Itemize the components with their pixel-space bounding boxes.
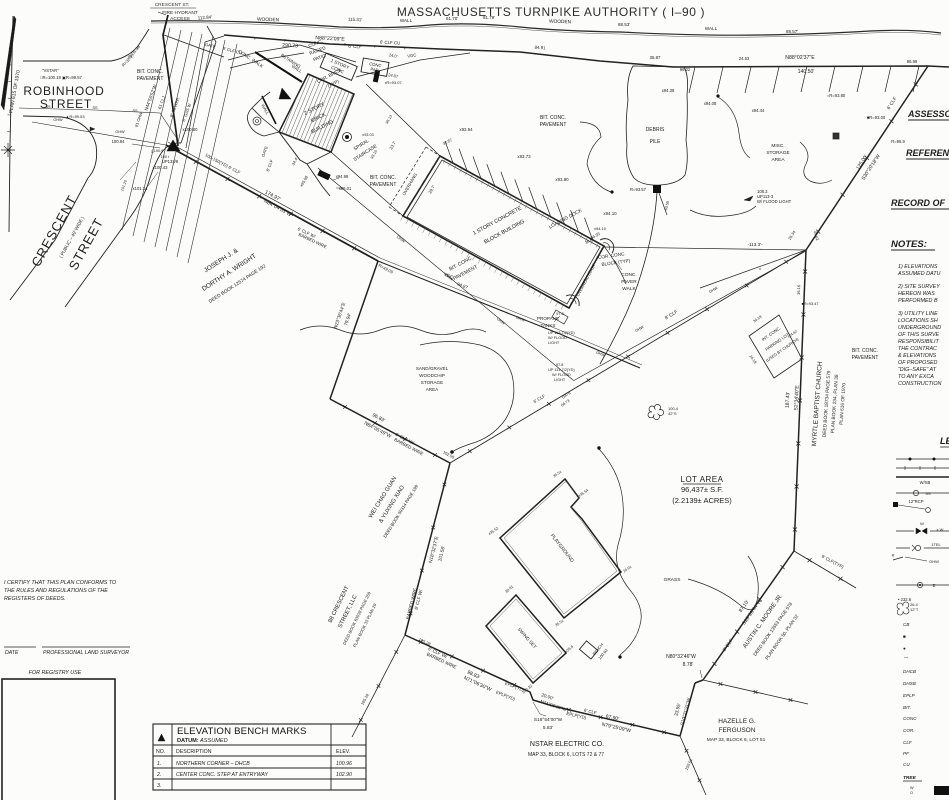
- svg-text:FOR REGISTRY USE: FOR REGISTRY USE: [29, 670, 82, 676]
- svg-text:PAVEMENT: PAVEMENT: [370, 182, 397, 188]
- svg-text:AREA: AREA: [426, 387, 439, 392]
- svg-text:61.70': 61.70': [446, 16, 458, 21]
- svg-text:5.83': 5.83': [543, 725, 553, 731]
- svg-text:6' CLF CU: 6' CLF CU: [380, 39, 401, 45]
- svg-text:100.96: 100.96: [336, 761, 352, 767]
- svg-text:x100.43: x100.43: [153, 165, 169, 170]
- svg-text:PAVER: PAVER: [621, 279, 637, 285]
- svg-text:WOODEN: WOODEN: [549, 19, 572, 26]
- svg-text:RESPONSIBILIT: RESPONSIBILIT: [898, 339, 939, 345]
- svg-text:ASSESSORS: ASSESSORS: [907, 109, 949, 119]
- svg-text:DHCB: DHCB: [903, 669, 916, 674]
- svg-text:100.84: 100.84: [112, 139, 125, 144]
- svg-text:ELEV.: ELEV.: [336, 749, 350, 755]
- svg-text:x94.10: x94.10: [594, 226, 607, 231]
- svg-text:UP 113-7/2(YD): UP 113-7/2(YD): [548, 331, 575, 335]
- svg-text:GRASS: GRASS: [664, 577, 681, 583]
- svg-text:x100.80: x100.80: [183, 127, 199, 132]
- svg-text:■R=93.47: ■R=93.47: [802, 302, 819, 306]
- svg-text:REGISTERS OF DEEDS.: REGISTERS OF DEEDS.: [4, 596, 66, 602]
- svg-text:24.53: 24.53: [739, 56, 750, 61]
- svg-text:x101.14: x101.14: [133, 186, 149, 191]
- svg-text:x93.80: x93.80: [555, 177, 569, 182]
- svg-text:PILE: PILE: [650, 139, 662, 145]
- svg-text:□R=100.18 ▣R=99.57: □R=100.18 ▣R=99.57: [40, 75, 83, 80]
- svg-text:UP 113-7/2(YD): UP 113-7/2(YD): [548, 368, 575, 372]
- svg-text:S18°54'00"W: S18°54'00"W: [534, 717, 563, 723]
- svg-text:ROBINHOOD: ROBINHOOD: [23, 84, 104, 98]
- svg-text:NORTHERN CORNER – DHCB: NORTHERN CORNER – DHCB: [176, 761, 250, 767]
- svg-text:W/ FLOOD: W/ FLOOD: [548, 336, 567, 340]
- svg-text:CONC: CONC: [903, 716, 917, 721]
- svg-text:E: E: [933, 583, 936, 588]
- svg-text:SS: SS: [92, 106, 98, 110]
- svg-text:CB: CB: [903, 622, 909, 627]
- svg-text:BIT. CONC.: BIT. CONC.: [852, 348, 878, 354]
- svg-text:42"S: 42"S: [668, 411, 677, 416]
- svg-text:112.84': 112.84': [198, 15, 213, 21]
- svg-text:ASSUMED DATU: ASSUMED DATU: [897, 271, 941, 277]
- svg-text:RECORD OF: RECORD OF: [891, 198, 946, 208]
- svg-text:WALL: WALL: [400, 18, 413, 23]
- svg-text:x93.54: x93.54: [459, 127, 473, 132]
- svg-text:SS: SS: [925, 491, 931, 496]
- svg-text:CONSTRUCTION: CONSTRUCTION: [898, 381, 942, 387]
- svg-text:HEREON WAS: HEREON WAS: [898, 291, 935, 297]
- svg-text:DESCRIPTION: DESCRIPTION: [176, 749, 212, 755]
- svg-text:N80°32'46"W: N80°32'46"W: [666, 654, 696, 660]
- svg-text:OF PROPOSED: OF PROPOSED: [898, 360, 938, 366]
- svg-text:CLF: CLF: [903, 740, 913, 745]
- svg-text:TREE: TREE: [903, 775, 917, 781]
- svg-text:R=95.9: R=95.9: [891, 139, 905, 144]
- svg-text:2) SITE SURVEY: 2) SITE SURVEY: [897, 284, 940, 290]
- svg-text:OHW: OHW: [929, 559, 939, 564]
- svg-text:ELEVATION BENCH MARKS: ELEVATION BENCH MARKS: [177, 726, 307, 737]
- svg-text:HAZELLE G.: HAZELLE G.: [718, 718, 756, 725]
- svg-text:8.78': 8.78': [683, 662, 694, 668]
- svg-text:THE RULES AND REGULATIONS OF T: THE RULES AND REGULATIONS OF THE: [4, 588, 108, 594]
- svg-text:■R=93.00: ■R=93.00: [867, 115, 886, 120]
- svg-text:x94.44: x94.44: [752, 108, 765, 113]
- svg-text:88.57': 88.57': [786, 29, 798, 34]
- svg-text:DATE: DATE: [5, 650, 19, 656]
- svg-text:UP133/9: UP133/9: [162, 159, 179, 164]
- svg-text:BIT. CONC.: BIT. CONC.: [137, 69, 163, 75]
- svg-text:BIT.: BIT.: [903, 705, 911, 710]
- svg-text:PAVEMENT: PAVEMENT: [137, 76, 164, 82]
- svg-text:115.31': 115.31': [348, 17, 363, 23]
- svg-text:W: W: [910, 786, 914, 790]
- svg-text:▪R=93.07: ▪R=93.07: [385, 80, 402, 85]
- svg-text:x: x: [759, 266, 761, 271]
- svg-text:x94.10: x94.10: [603, 211, 617, 216]
- svg-text:84.91: 84.91: [534, 45, 546, 51]
- svg-text:R=93.57: R=93.57: [630, 187, 647, 192]
- svg-text:W: W: [920, 521, 924, 526]
- svg-text:SS: SS: [132, 109, 138, 113]
- svg-text:STORAGE: STORAGE: [421, 380, 443, 385]
- svg-text:16.16: 16.16: [796, 284, 802, 295]
- svg-text:DEBRIS: DEBRIS: [646, 127, 665, 133]
- svg-text:88.53': 88.53': [618, 22, 630, 27]
- svg-text:x93.03: x93.03: [362, 133, 373, 137]
- svg-text:97.8: 97.8: [556, 363, 563, 367]
- svg-text:CRESCENT ST.: CRESCENT ST.: [155, 2, 190, 8]
- svg-text:△100.9: △100.9: [151, 149, 163, 153]
- svg-text:PERFORMED B: PERFORMED B: [898, 298, 938, 304]
- svg-text:FERGUSON: FERGUSON: [719, 727, 756, 734]
- svg-text:x W: x W: [937, 527, 944, 532]
- svg-text:TO ANY EXCA: TO ANY EXCA: [898, 374, 934, 380]
- svg-text:(2.2139± ACRES): (2.2139± ACRES): [672, 496, 732, 505]
- svg-text:x94.08: x94.08: [704, 101, 717, 106]
- svg-text:O: O: [910, 791, 913, 795]
- svg-text:NO.: NO.: [156, 749, 165, 755]
- svg-text:I CERTIFY THAT THIS PLAN CONFO: I CERTIFY THAT THIS PLAN CONFORMS TO: [4, 580, 117, 586]
- svg-text:PAVEMENT: PAVEMENT: [852, 355, 879, 361]
- svg-text:WALL: WALL: [705, 26, 718, 31]
- svg-text:PROFESSIONAL LAND SURVEYOR: PROFESSIONAL LAND SURVEYOR: [43, 650, 129, 656]
- svg-text:▲R=99.53: ▲R=99.53: [65, 114, 85, 119]
- svg-text:35.87: 35.87: [650, 55, 662, 60]
- svg-text:x94.38: x94.38: [662, 88, 675, 93]
- svg-text:ASSUMED: ASSUMED: [199, 738, 228, 744]
- svg-text:NSTAR ELECTRIC CO.: NSTAR ELECTRIC CO.: [530, 741, 604, 748]
- svg-text:OHW: OHW: [53, 118, 63, 122]
- svg-text:W/SB: W/SB: [920, 480, 931, 485]
- svg-text:97.8: 97.8: [556, 312, 563, 316]
- svg-text:BIT. CONC.: BIT. CONC.: [370, 175, 396, 181]
- svg-text:3) UTILITY LINE: 3) UTILITY LINE: [898, 311, 938, 317]
- svg-text:102.90: 102.90: [336, 772, 352, 778]
- svg-text:1) ELEVATIONS: 1) ELEVATIONS: [898, 264, 938, 270]
- svg-text:N88°02'37"E: N88°02'37"E: [785, 55, 815, 61]
- svg-text:AREA: AREA: [771, 157, 785, 163]
- svg-text:DATUM:: DATUM:: [177, 738, 199, 744]
- svg-text:BIT. CONC.: BIT. CONC.: [540, 115, 566, 121]
- svg-text:x93.73: x93.73: [517, 154, 531, 159]
- svg-text:CENTER CONC. STEP AT ENTRY: CENTER CONC. STEP AT ENTRYWAY: [176, 772, 268, 778]
- svg-text:W/ FLOOD: W/ FLOOD: [552, 373, 571, 377]
- svg-text:MAP 33, BLOCK 6, LOTS 72 & 77: MAP 33, BLOCK 6, LOTS 72 & 77: [528, 752, 604, 758]
- svg-text:MASSACHUSETTS TURNPIKE AUTHO: MASSACHUSETTS TURNPIKE AUTHORITY ( I–90 …: [397, 5, 705, 19]
- svg-text:W/ FLOOD LIGHT: W/ FLOOD LIGHT: [757, 199, 792, 204]
- svg-text:THE CONTRAC: THE CONTRAC: [898, 346, 937, 352]
- svg-text:& ELEVATIONS: & ELEVATIONS: [898, 353, 937, 359]
- svg-text:MISC.: MISC.: [771, 143, 784, 149]
- svg-text:WOODCHIP: WOODCHIP: [419, 373, 445, 378]
- svg-text:WALK: WALK: [622, 286, 636, 292]
- svg-text:“DIG–SAFE” AT: “DIG–SAFE” AT: [898, 367, 937, 373]
- svg-text:CONC.: CONC.: [621, 272, 636, 278]
- svg-text:187.43': 187.43': [785, 392, 792, 409]
- svg-text:12"RCP: 12"RCP: [909, 499, 924, 504]
- svg-text:86.99: 86.99: [907, 59, 918, 64]
- svg-text:OHW: OHW: [115, 130, 125, 134]
- svg-text:1.: 1.: [157, 761, 161, 767]
- svg-text:COR.: COR.: [903, 728, 914, 733]
- svg-text:■: ■: [903, 634, 906, 639]
- svg-text:○R=93.80: ○R=93.80: [827, 93, 846, 98]
- svg-text:2.: 2.: [156, 772, 161, 778]
- svg-text:3.: 3.: [157, 783, 161, 789]
- svg-text:LIGHT: LIGHT: [554, 378, 566, 382]
- svg-text:LE: LE: [940, 436, 949, 446]
- svg-text:CU: CU: [903, 762, 910, 767]
- svg-text:LOT AREA: LOT AREA: [681, 475, 724, 484]
- svg-text:DHSB: DHSB: [903, 681, 916, 686]
- svg-text:WOODEN: WOODEN: [257, 17, 280, 24]
- svg-text:●: ●: [903, 646, 906, 651]
- svg-text:REFERENCE: REFERENCE: [906, 148, 949, 158]
- svg-text:TANKS: TANKS: [541, 323, 556, 328]
- svg-text:12"T: 12"T: [910, 607, 919, 612]
- svg-text:96,437± S.F.: 96,437± S.F.: [681, 485, 723, 494]
- svg-text:81.79': 81.79': [483, 15, 495, 20]
- svg-text:1TEL: 1TEL: [931, 542, 941, 547]
- svg-text:EPLP: EPLP: [903, 693, 916, 698]
- svg-text:SS: SS: [45, 105, 51, 109]
- svg-text:-113.3'-: -113.3'-: [747, 242, 763, 247]
- svg-text:NOTES:: NOTES:: [891, 239, 927, 250]
- svg-text:OF THIS SURVE: OF THIS SURVE: [898, 332, 940, 338]
- svg-text:PAVEMENT: PAVEMENT: [540, 122, 567, 128]
- svg-text:SAND/GRAVEL: SAND/GRAVEL: [416, 366, 449, 371]
- svg-text:LOCATIONS SH: LOCATIONS SH: [898, 318, 938, 324]
- svg-text:6' CLF: 6' CLF: [348, 44, 362, 50]
- svg-text:STORAGE: STORAGE: [766, 150, 789, 156]
- svg-text:"VSTAR": "VSTAR": [42, 68, 59, 73]
- svg-text:LIGHT: LIGHT: [548, 341, 560, 345]
- svg-text:UNDERGROUND: UNDERGROUND: [898, 325, 941, 331]
- svg-text:MAP 33, BLOCK 6, LOT 51: MAP 33, BLOCK 6, LOT 51: [707, 737, 766, 743]
